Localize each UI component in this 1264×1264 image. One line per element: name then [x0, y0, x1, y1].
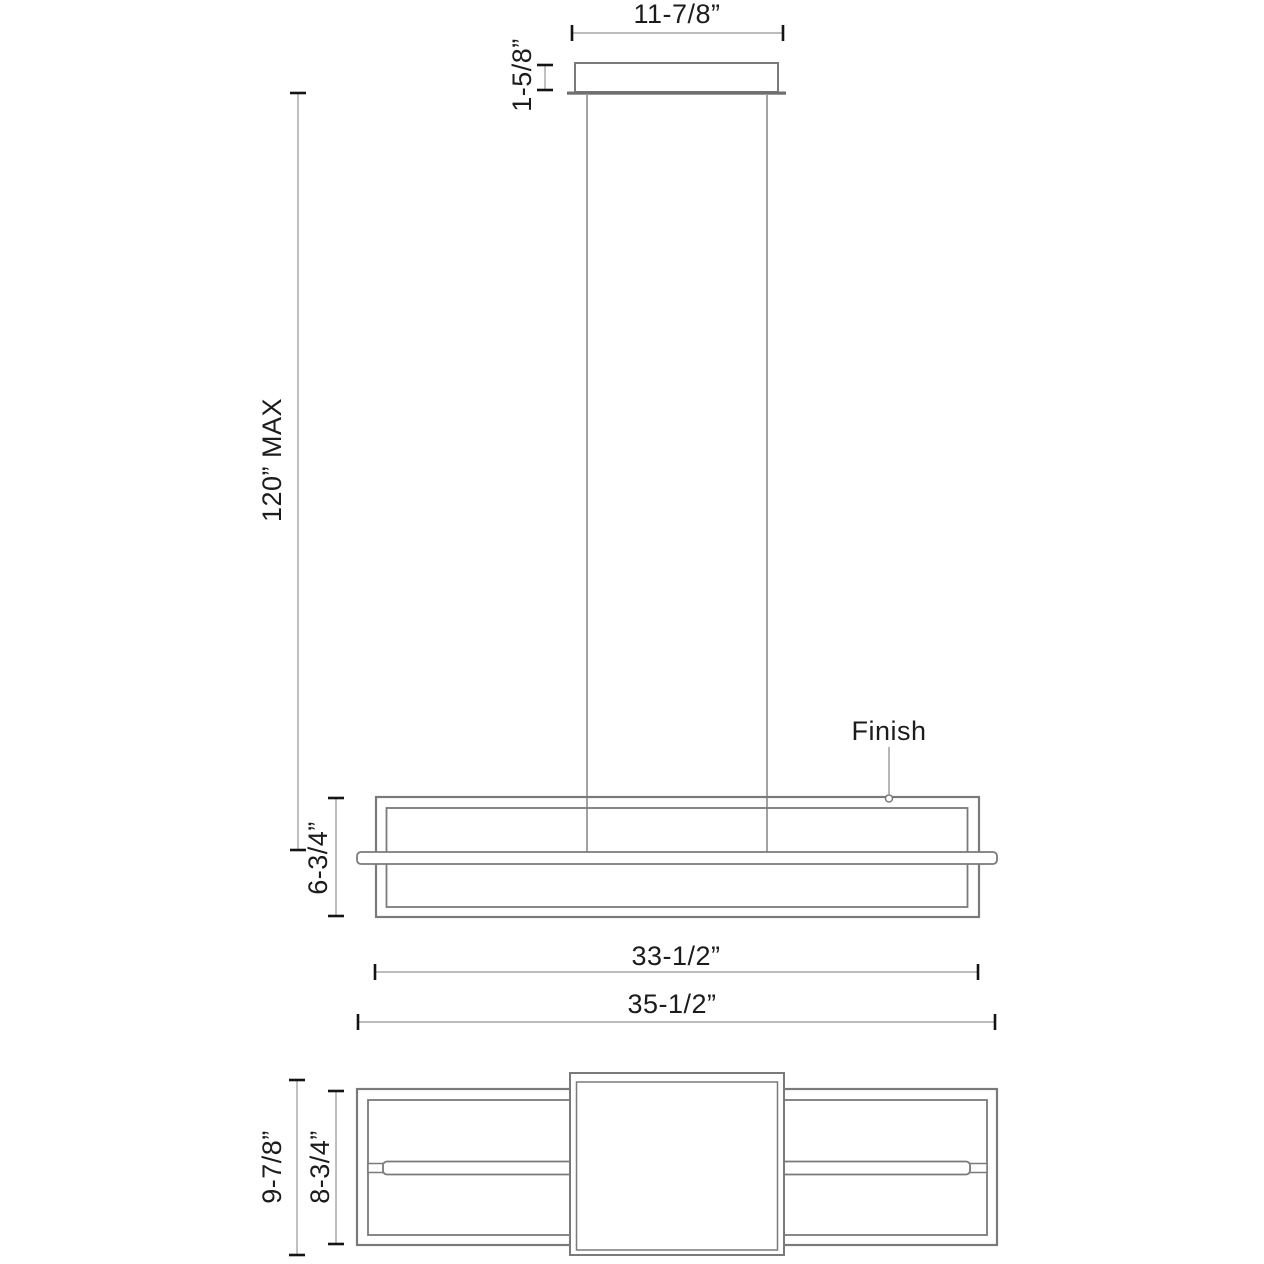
- plan-center-box-outer: [570, 1073, 784, 1255]
- dim-overall-width: 35-1/2”: [358, 989, 995, 1030]
- dim-overall-depth-label: 9-7/8”: [257, 1130, 287, 1204]
- plan-view: 9-7/8” 8-3/4”: [257, 1073, 997, 1255]
- finish-callout: Finish: [851, 716, 926, 802]
- dim-canopy-height: 1-5/8”: [507, 38, 553, 112]
- dim-overall-width-label: 35-1/2”: [627, 989, 716, 1019]
- finish-label: Finish: [851, 716, 926, 746]
- finish-leader-dot: [886, 795, 893, 802]
- dim-fixture-height: 6-3/4”: [303, 798, 344, 916]
- dimension-drawing-canvas: 11-7/8” 1-5/8” 120” MAX: [0, 0, 1264, 1264]
- dim-frame-width: 33-1/2”: [375, 941, 978, 980]
- dim-frame-width-label: 33-1/2”: [631, 941, 720, 971]
- canopy-ceiling-plate: [567, 92, 786, 95]
- front-view: 11-7/8” 1-5/8” 120” MAX: [257, 0, 997, 1030]
- dim-canopy-width: 11-7/8”: [572, 0, 783, 41]
- fixture-light-bar: [357, 852, 997, 864]
- dim-max-suspension: 120” MAX: [257, 93, 306, 850]
- dimension-drawing-page: 11-7/8” 1-5/8” 120” MAX: [0, 0, 1264, 1264]
- dim-frame-depth-label: 8-3/4”: [305, 1130, 335, 1204]
- dim-frame-depth: 8-3/4”: [305, 1091, 344, 1244]
- plan-tube-connector-left: [368, 1164, 384, 1173]
- dim-fixture-height-label: 6-3/4”: [303, 821, 333, 895]
- plan-tube-connector-right: [969, 1164, 987, 1173]
- dim-canopy-height-label: 1-5/8”: [507, 38, 537, 112]
- dim-max-suspension-label: 120” MAX: [257, 398, 287, 522]
- dim-canopy-width-label: 11-7/8”: [633, 0, 720, 29]
- canopy-body: [575, 63, 778, 92]
- dim-overall-depth: 9-7/8”: [257, 1080, 305, 1255]
